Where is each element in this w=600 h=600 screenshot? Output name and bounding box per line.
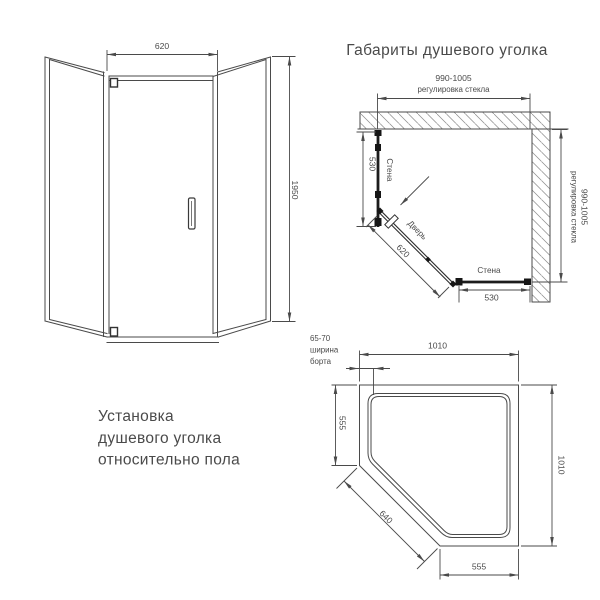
plan-bottom-wall-label: Стена <box>477 266 501 275</box>
installation-caption: Установка душевого уголка относительно п… <box>98 408 240 469</box>
drawing-page: 620 1950 Габариты душевого уголка 990-10… <box>0 0 600 600</box>
shower-technical-drawing: 620 1950 Габариты душевого уголка 990-10… <box>0 0 600 600</box>
tray-bottom-dim-label: 555 <box>472 562 487 572</box>
wall-profile-connector-top <box>375 130 382 136</box>
plan-bottom-dim-label: 530 <box>484 293 499 303</box>
wall-right-hatch <box>532 129 550 302</box>
tray-rim-note-line1: 65-70 <box>310 334 331 343</box>
tray-outer-pentagon <box>360 385 519 546</box>
tray-rim-note-line2: ширина <box>310 346 339 355</box>
plan-right-dim-label: 990-1005 <box>580 189 590 226</box>
tray-view: 65-70 ширина борта 1010 555 640 555 1010 <box>310 334 567 580</box>
wall-profile-connector-right <box>524 279 531 286</box>
glass-clamp-upper <box>375 144 381 151</box>
enclosure-frame <box>45 57 271 343</box>
door-pivot-block <box>375 218 382 226</box>
door-hinge-top <box>111 79 118 88</box>
plan-right-dim-note: регулировка стекла <box>570 171 579 244</box>
tray-top-dim-label: 1010 <box>428 341 447 351</box>
tray-right-dim-label: 1010 <box>557 455 567 474</box>
door-pointer-arrow <box>401 177 430 206</box>
plan-door-dim-label: 620 <box>395 242 412 259</box>
door-end-block-bottom <box>449 280 456 287</box>
plan-top-dim-label: 990-1005 <box>435 73 472 83</box>
front-width-dim-label: 620 <box>155 41 170 51</box>
front-extension-lines <box>107 50 296 322</box>
tray-left-dim-label: 555 <box>338 416 348 431</box>
plan-top-dim-note: регулировка стекла <box>417 85 490 94</box>
tray-rim-note-line3: борта <box>310 357 332 366</box>
plan-door-label: Дверь <box>406 219 429 242</box>
wall-top-hatch <box>360 113 550 130</box>
caption-line1: Установка <box>98 408 174 425</box>
plan-view: Габариты душевого уголка 990-1005 регули… <box>346 42 589 303</box>
tray-diagonal-dim-label: 640 <box>378 508 395 525</box>
plan-view-title: Габариты душевого уголка <box>346 42 548 59</box>
front-view: 620 1950 <box>45 41 300 343</box>
front-height-dim-label: 1950 <box>290 180 300 199</box>
plan-left-wall-label: Стена <box>385 158 394 182</box>
caption-line2: душевого уголка <box>98 430 221 447</box>
glass-clamp-lower <box>375 191 381 198</box>
door-hinge-bottom <box>111 328 118 337</box>
caption-line3: относительно пола <box>98 452 240 469</box>
door-catch-block <box>456 278 463 286</box>
door-mid-block <box>425 257 431 263</box>
plan-left-dim-label: 530 <box>368 157 378 172</box>
